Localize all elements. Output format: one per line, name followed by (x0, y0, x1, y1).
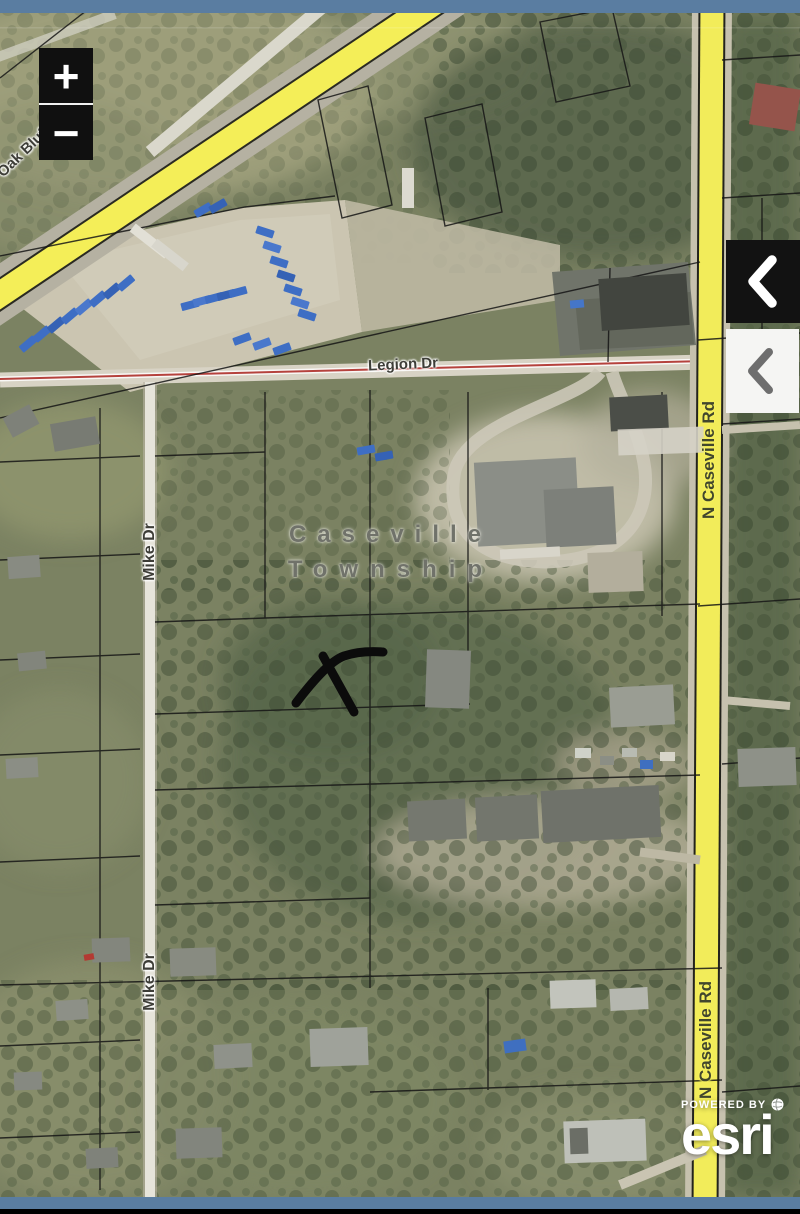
globe-icon (771, 1098, 784, 1111)
road-label-n-caseville-lower: N Caseville Rd (696, 981, 716, 1099)
township-label-line2: Township (260, 553, 510, 588)
township-label: Caseville Township (260, 518, 510, 588)
aerial-imagery (0, 0, 800, 1214)
app-screen: Oak Bluff Rd Legion Dr Mike Dr Mike Dr N… (0, 0, 800, 1214)
road-label-legion: Legion Dr (368, 354, 439, 374)
panel-toggle-dark[interactable] (726, 240, 800, 323)
chevron-left-icon (726, 329, 799, 413)
zoom-in-button[interactable]: + (39, 48, 93, 103)
road-label-n-caseville-upper: N Caseville Rd (699, 401, 719, 519)
township-label-line1: Caseville (260, 518, 510, 553)
bottom-black-strip (0, 1209, 800, 1214)
road-label-mike-upper: Mike Dr (141, 523, 159, 581)
chevron-left-icon (726, 240, 800, 323)
bottom-status-bar (0, 1197, 800, 1209)
zoom-out-button[interactable]: − (39, 105, 93, 160)
zoom-control: + − (39, 48, 93, 160)
panel-toggle-light[interactable] (726, 329, 799, 413)
esri-logo[interactable]: esri (681, 1112, 784, 1158)
map-viewport[interactable]: Oak Bluff Rd Legion Dr Mike Dr Mike Dr N… (0, 0, 800, 1214)
esri-attribution: POWERED BY esri (681, 1098, 784, 1158)
road-label-mike-lower: Mike Dr (141, 953, 159, 1011)
top-status-bar (0, 0, 800, 13)
